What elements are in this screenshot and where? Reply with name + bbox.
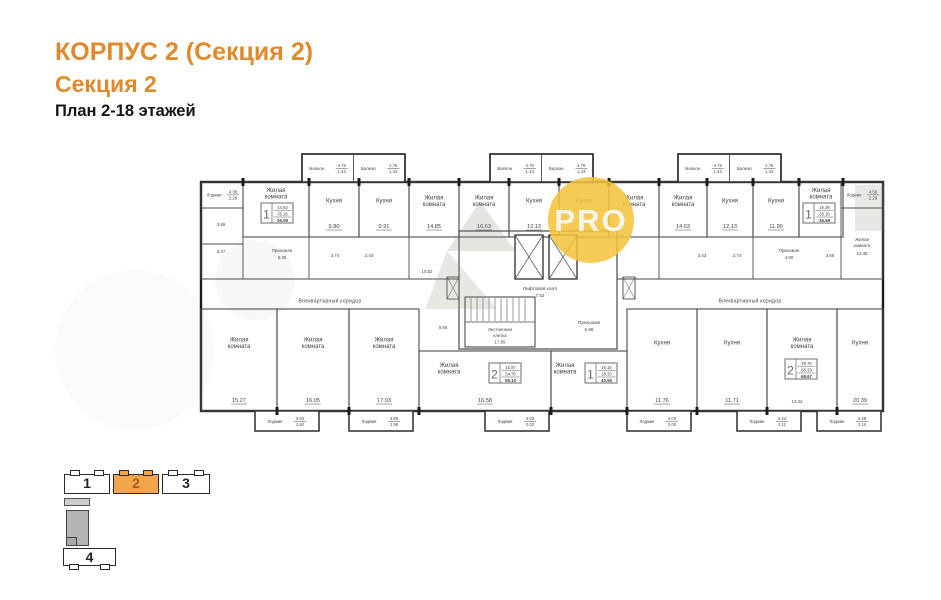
section-title: Секция 2 — [55, 69, 313, 100]
floor-plan: Балкон4.761.43Балкон4.761.43Балкон4.761.… — [197, 151, 887, 441]
room-label: комната — [810, 195, 833, 201]
room-area: 11.90 — [769, 224, 783, 230]
room-area: 17.93 — [377, 398, 391, 404]
plan-text: 3.74 — [733, 253, 742, 258]
plan-text: 3.89 — [390, 416, 399, 421]
room-label: Кухня — [852, 341, 868, 347]
unit-room-count: 1 — [587, 368, 594, 382]
minimap-block-3[interactable]: 3 — [162, 474, 210, 494]
room-shape — [201, 309, 277, 411]
unit-area-total: 68.67 — [801, 374, 813, 379]
plan-subtitle: План 2-18 этажей — [55, 100, 313, 123]
plan-text: 4.76 — [389, 163, 398, 168]
room-shape — [277, 309, 349, 411]
minimap-gray-bar — [64, 498, 90, 506]
plan-text: Лоджия — [640, 419, 655, 424]
room-label: Жилая — [230, 338, 249, 344]
plan-text: 3.47 — [217, 249, 226, 254]
minimap-block-2-active[interactable]: 2 — [113, 474, 159, 494]
plan-text: Лоджия — [830, 419, 845, 424]
room-area: 14.85 — [427, 224, 441, 230]
entry-hall-label: Прихожая — [578, 320, 601, 326]
minimap-notch — [69, 564, 79, 570]
room-area: 15.27 — [232, 398, 246, 404]
plan-text: Лоджия — [362, 419, 377, 424]
room-shape — [349, 309, 419, 411]
unit-room-count: 1 — [805, 208, 812, 222]
dimension-tick — [842, 178, 845, 186]
plan-text: 4.76 — [714, 163, 723, 168]
room-label: Жилая — [375, 338, 394, 344]
dimension-tick — [696, 407, 699, 415]
plan-text: 1.92 — [296, 422, 305, 427]
minimap-notch — [70, 470, 80, 476]
minimap-block-label: 2 — [114, 475, 158, 492]
room-label: комната — [672, 202, 695, 208]
plan-text: Лоджия — [750, 419, 765, 424]
unit-area: 35.16 — [277, 211, 288, 216]
unit-area: 14.83 — [277, 205, 288, 210]
plan-text: Жилая — [855, 237, 870, 242]
dimension-tick — [836, 407, 839, 415]
corridor-label: Внеквартирный коридор — [719, 298, 782, 305]
stairs-label: клетка — [493, 333, 507, 338]
dimension-tick — [508, 178, 511, 186]
room-label: комната — [791, 344, 814, 350]
unit-area: 29.76 — [801, 361, 812, 366]
plan-text: Лоджия — [498, 419, 513, 424]
unit-area-total: 40.55 — [601, 378, 613, 383]
plan-text: 3.43 — [698, 253, 707, 258]
dimension-tick — [276, 407, 279, 415]
plan-text: 7.52 — [536, 293, 545, 298]
minimap-notch — [100, 564, 110, 570]
dimension-tick — [766, 407, 769, 415]
plan-text: 3.84 — [296, 416, 305, 421]
room-area: 12.13 — [723, 224, 737, 230]
room-area: 14.63 — [676, 224, 690, 230]
plan-text: 3.43 — [365, 253, 374, 258]
pro-badge-text: PRO — [554, 203, 627, 238]
plan-text: 4.38 — [229, 189, 238, 194]
dimension-tick — [706, 178, 709, 186]
plan-text: 4.23 — [778, 416, 787, 421]
room-area: 16.58 — [478, 398, 492, 404]
room-label: Кухня — [326, 199, 342, 205]
plan-text: Балкон — [361, 166, 376, 171]
dimension-tick — [752, 178, 755, 186]
dimension-tick — [550, 407, 553, 415]
plan-text: 1.43 — [389, 169, 398, 174]
dimension-tick — [308, 178, 311, 186]
plan-text: Прихожая — [779, 248, 800, 253]
dimension-tick — [408, 178, 411, 186]
loggia — [737, 411, 801, 431]
dimension-tick — [658, 178, 661, 186]
room-label: комната — [438, 370, 461, 376]
room-label: комната — [373, 344, 396, 350]
unit-area: 16.87 — [505, 365, 516, 370]
room-area: 11.71 — [725, 398, 739, 404]
plan-text: Лоджия — [207, 193, 222, 198]
room-shape — [697, 309, 767, 411]
loggia — [255, 411, 319, 431]
unit-room-count: 2 — [787, 364, 794, 378]
building-title: КОРПУС 2 (Секция 2) — [55, 36, 313, 69]
minimap-block-label: 1 — [65, 475, 109, 492]
plan-text: 4.03 — [668, 416, 677, 421]
room-area: 20.39 — [853, 398, 867, 404]
plan-text: 1.43 — [714, 169, 723, 174]
room-label: Жилая — [812, 188, 831, 194]
unit-area: 35.16 — [819, 211, 830, 216]
plan-text: 4.03 — [526, 416, 535, 421]
unit-area-total: 36.59 — [819, 218, 831, 223]
dimension-tick — [458, 178, 461, 186]
plan-text: 10.52 — [422, 269, 434, 274]
room-label: Кухня — [722, 199, 738, 205]
plan-text: 1.43 — [765, 169, 774, 174]
room-label: Жилая — [304, 338, 323, 344]
plan-text: 4.76 — [338, 163, 347, 168]
dimension-tick — [358, 178, 361, 186]
plan-text: 12.48 — [857, 251, 869, 256]
plan-text: 4.76 — [526, 163, 535, 168]
plan-text: 1.43 — [338, 169, 347, 174]
room-label: Кухня — [724, 341, 740, 347]
corridor-label: Внеквартирный коридор — [299, 298, 362, 305]
minimap-gray-tower — [66, 510, 89, 546]
plan-text: 6.30 — [278, 255, 287, 260]
room-label: комната — [228, 344, 251, 350]
plan-text: Балкон — [549, 166, 564, 171]
plan-text: Балкон — [497, 166, 512, 171]
unit-area: 16.16 — [601, 365, 612, 370]
unit-area: 38.33 — [601, 371, 612, 376]
floor-plan-svg: Балкон4.761.43Балкон4.761.43Балкон4.761.… — [197, 151, 887, 441]
plan-text: Балкон — [737, 166, 752, 171]
room-area: 11.76 — [655, 398, 669, 404]
dimension-tick — [558, 178, 561, 186]
room-label: Кухня — [376, 199, 392, 205]
plan-text: 17.65 — [495, 340, 507, 345]
room-label: комната — [302, 344, 325, 350]
room-shape — [627, 309, 697, 411]
watermark-triangle — [447, 201, 515, 251]
room-label: комната — [554, 370, 577, 376]
room-label: Жилая — [556, 363, 575, 369]
room-label: Жилая — [793, 338, 812, 344]
plan-text: 4.28 — [858, 416, 867, 421]
plan-text: 3.74 — [331, 253, 340, 258]
plan-text: 2.29 — [229, 196, 238, 201]
section-minimap: 1 2 3 4 — [58, 465, 228, 570]
plan-text: 4.76 — [765, 163, 774, 168]
dimension-tick — [242, 178, 245, 186]
plan-text: Балкон — [309, 166, 324, 171]
plan-text: 4.00 — [785, 255, 794, 260]
room-shape — [837, 309, 883, 411]
minimap-notch — [119, 470, 129, 476]
loggia — [349, 411, 413, 431]
minimap-notch — [168, 470, 178, 476]
plan-text: 5.99 — [585, 327, 594, 332]
dimension-tick — [626, 407, 629, 415]
plan-text: 3.89 — [217, 222, 226, 227]
watermark-rect — [855, 185, 885, 231]
unit-area: 66.33 — [801, 367, 812, 372]
plan-text: Балкон — [685, 166, 700, 171]
plan-text: 9.68 — [439, 325, 448, 330]
minimap-block-label: 3 — [163, 475, 209, 492]
plan-text: Лоджия — [268, 419, 283, 424]
dimension-tick — [418, 407, 421, 415]
background-watermark-circle — [55, 270, 215, 430]
unit-area: 54.76 — [505, 371, 516, 376]
plan-text: 4.76 — [577, 163, 586, 168]
minimap-block-1[interactable]: 1 — [64, 474, 110, 494]
dimension-tick — [798, 178, 801, 186]
room-label: комната — [265, 195, 288, 201]
plan-text: 1.43 — [526, 169, 535, 174]
room-label: Жилая — [267, 188, 286, 194]
plan-text: 2.14 — [858, 422, 867, 427]
unit-room-count: 2 — [491, 368, 498, 382]
plan-text: 2.11 — [778, 422, 787, 427]
minimap-block-4[interactable]: 4 — [63, 548, 116, 566]
dimension-tick — [348, 407, 351, 415]
room-label: Кухня — [526, 199, 542, 205]
plan-text: 1.96 — [390, 422, 399, 427]
plan-text: 13.22 — [792, 399, 804, 404]
title-block: КОРПУС 2 (Секция 2) Секция 2 План 2-18 э… — [55, 36, 313, 123]
elevator-hall-label: Лифтовой холл — [523, 285, 557, 292]
minimap-notch — [194, 470, 204, 476]
minimap-notch — [143, 470, 153, 476]
plan-text: 2.02 — [526, 422, 535, 427]
room-label: Кухня — [768, 199, 784, 205]
room-label: Жилая — [475, 196, 494, 202]
plan-text: Прихожая — [272, 248, 293, 253]
watermark-triangle — [425, 251, 497, 309]
room-label: Жилая — [674, 196, 693, 202]
plan-text: 3.65 — [826, 253, 835, 258]
unit-area-total: 56.10 — [505, 378, 517, 383]
plan-text: комната — [854, 243, 871, 248]
plan-text: 2.00 — [668, 422, 677, 427]
room-area: 12.13 — [527, 224, 541, 230]
unit-area: 16.36 — [819, 205, 830, 210]
minimap-notch — [94, 470, 104, 476]
unit-area-total: 36.59 — [277, 218, 289, 223]
loggia — [485, 411, 549, 431]
plan-text: 1.43 — [577, 169, 586, 174]
room-label: Жилая — [425, 196, 444, 202]
loggia — [817, 411, 881, 431]
room-area: 9.80 — [329, 224, 340, 230]
room-label: комната — [423, 202, 446, 208]
room-label: Жилая — [440, 363, 459, 369]
room-area: 16.05 — [306, 398, 320, 404]
room-label: Кухня — [654, 341, 670, 347]
loggia — [627, 411, 691, 431]
unit-room-count: 1 — [263, 208, 270, 222]
room-area: 9.91 — [379, 224, 390, 230]
stairs-label: Лестничная — [488, 327, 513, 332]
